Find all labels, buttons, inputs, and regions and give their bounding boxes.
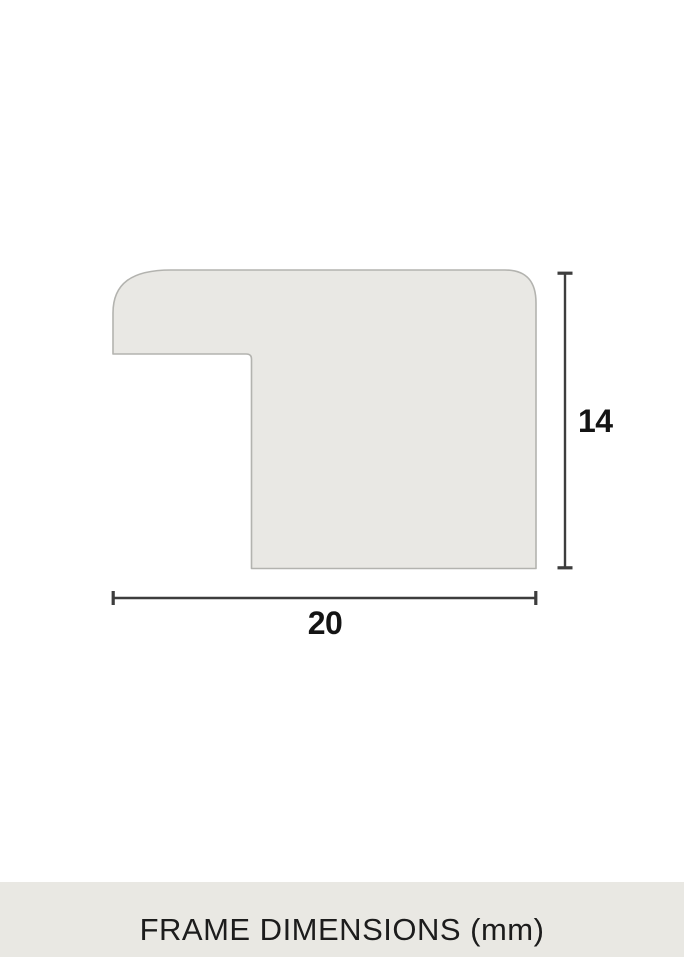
height-dimension-line bbox=[558, 273, 573, 568]
width-dimension-value: 20 bbox=[308, 605, 343, 641]
caption-bar: FRAME DIMENSIONS (mm) bbox=[0, 882, 684, 957]
frame-dimensions-page: 14 20 FRAME DIMENSIONS (mm) bbox=[0, 0, 684, 957]
frame-profile-shape bbox=[113, 270, 536, 569]
width-dimension-line bbox=[113, 591, 536, 605]
height-dimension-value: 14 bbox=[578, 403, 613, 439]
frame-profile-diagram: 14 20 bbox=[0, 0, 684, 957]
caption-text: FRAME DIMENSIONS (mm) bbox=[140, 912, 545, 948]
